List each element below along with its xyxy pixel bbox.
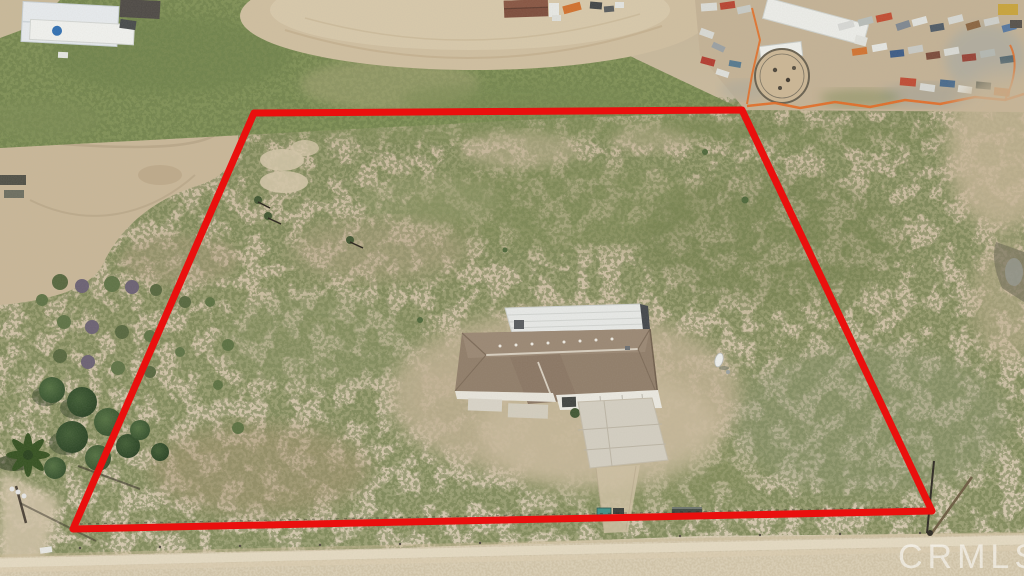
watermark-crmls: CRMLS [898,538,1024,576]
film-grain-overlay [0,0,1024,576]
aerial-photo: CRMLS [0,0,1024,576]
